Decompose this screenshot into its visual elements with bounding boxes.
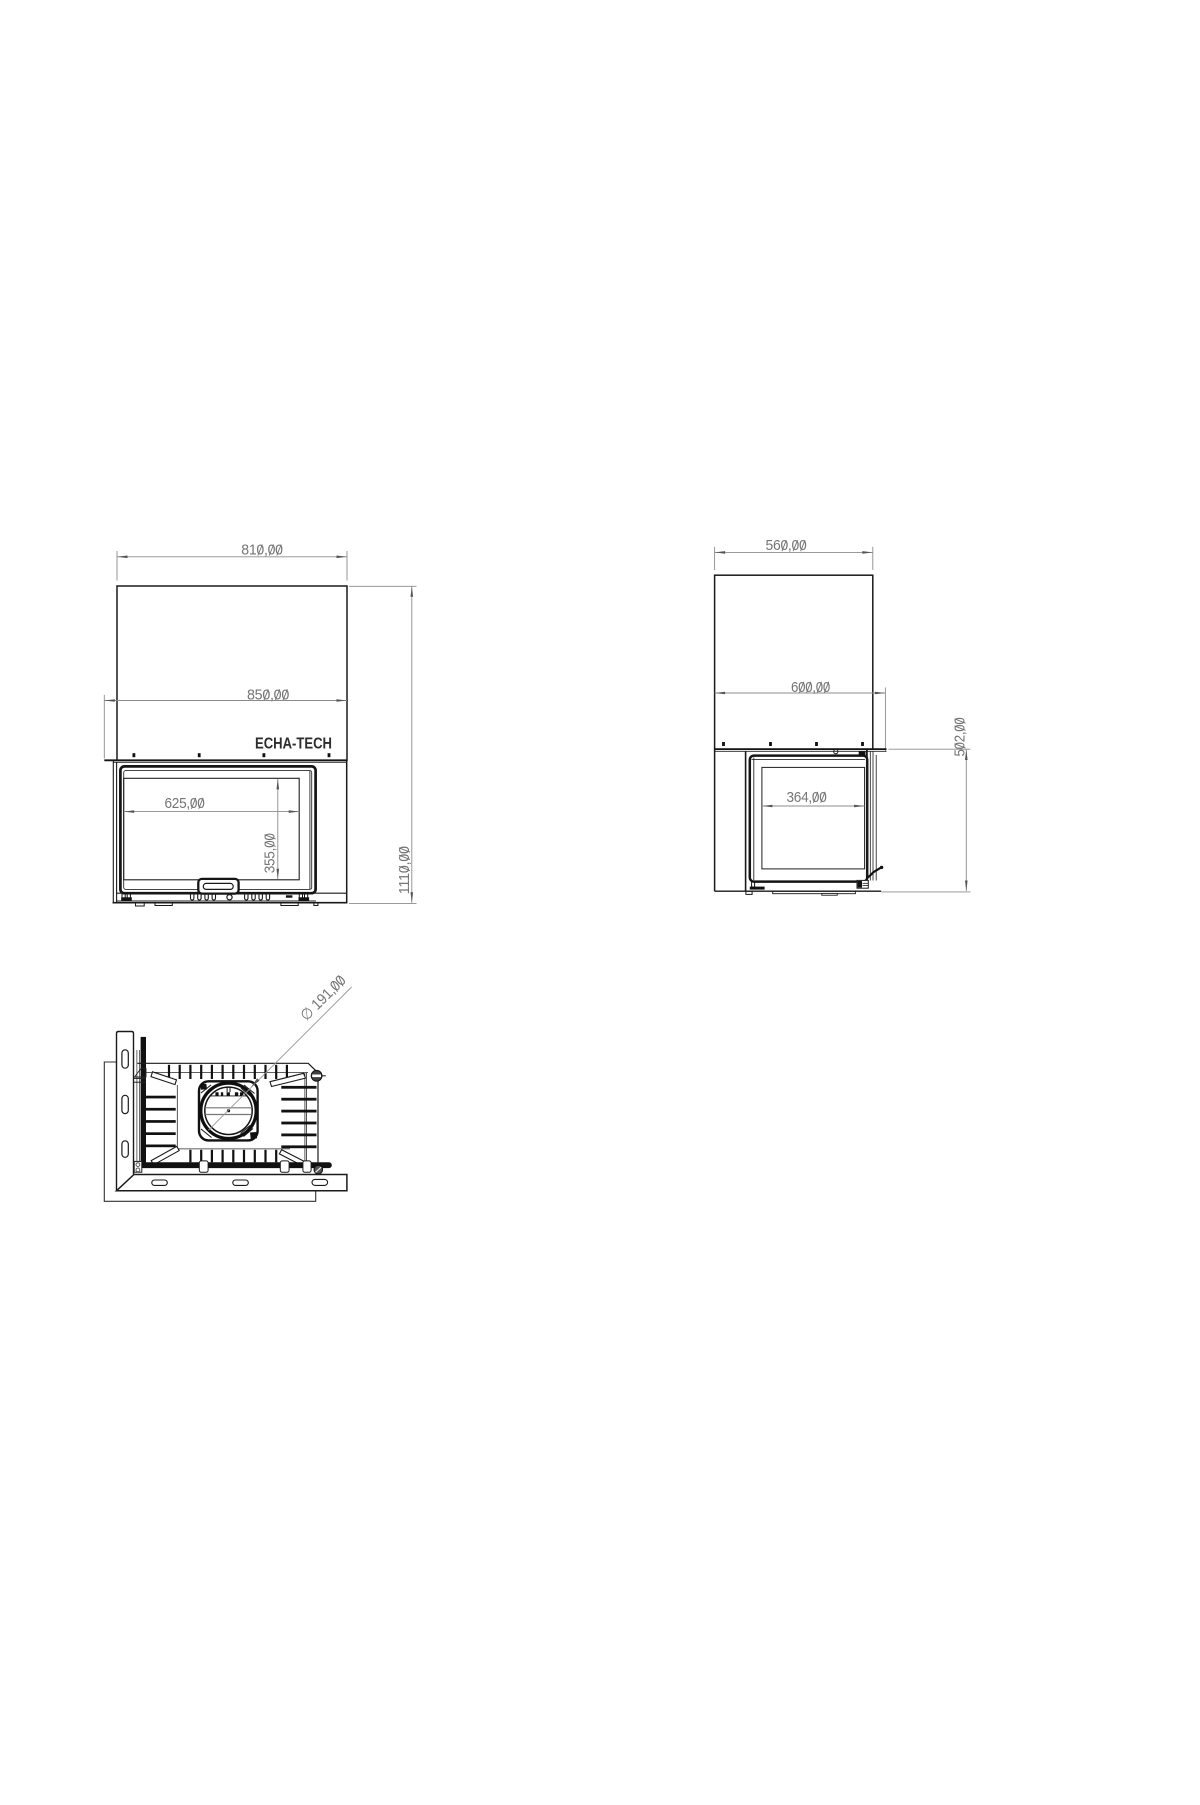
svg-text:355,00: 355,00 [262, 833, 279, 873]
svg-text:1110,00: 1110,00 [396, 846, 413, 894]
svg-text:∅ 191,00: ∅ 191,00 [297, 972, 349, 1024]
svg-text:850,00: 850,00 [247, 686, 289, 703]
svg-text:364,00: 364,00 [787, 789, 827, 806]
svg-text:502,00: 502,00 [952, 718, 969, 757]
svg-text:ECHA-TECH: ECHA-TECH [255, 736, 332, 753]
svg-text:625,00: 625,00 [165, 795, 205, 812]
svg-text:560,00: 560,00 [766, 537, 807, 554]
svg-text:810,00: 810,00 [241, 542, 283, 559]
svg-text:600,00: 600,00 [791, 679, 830, 696]
